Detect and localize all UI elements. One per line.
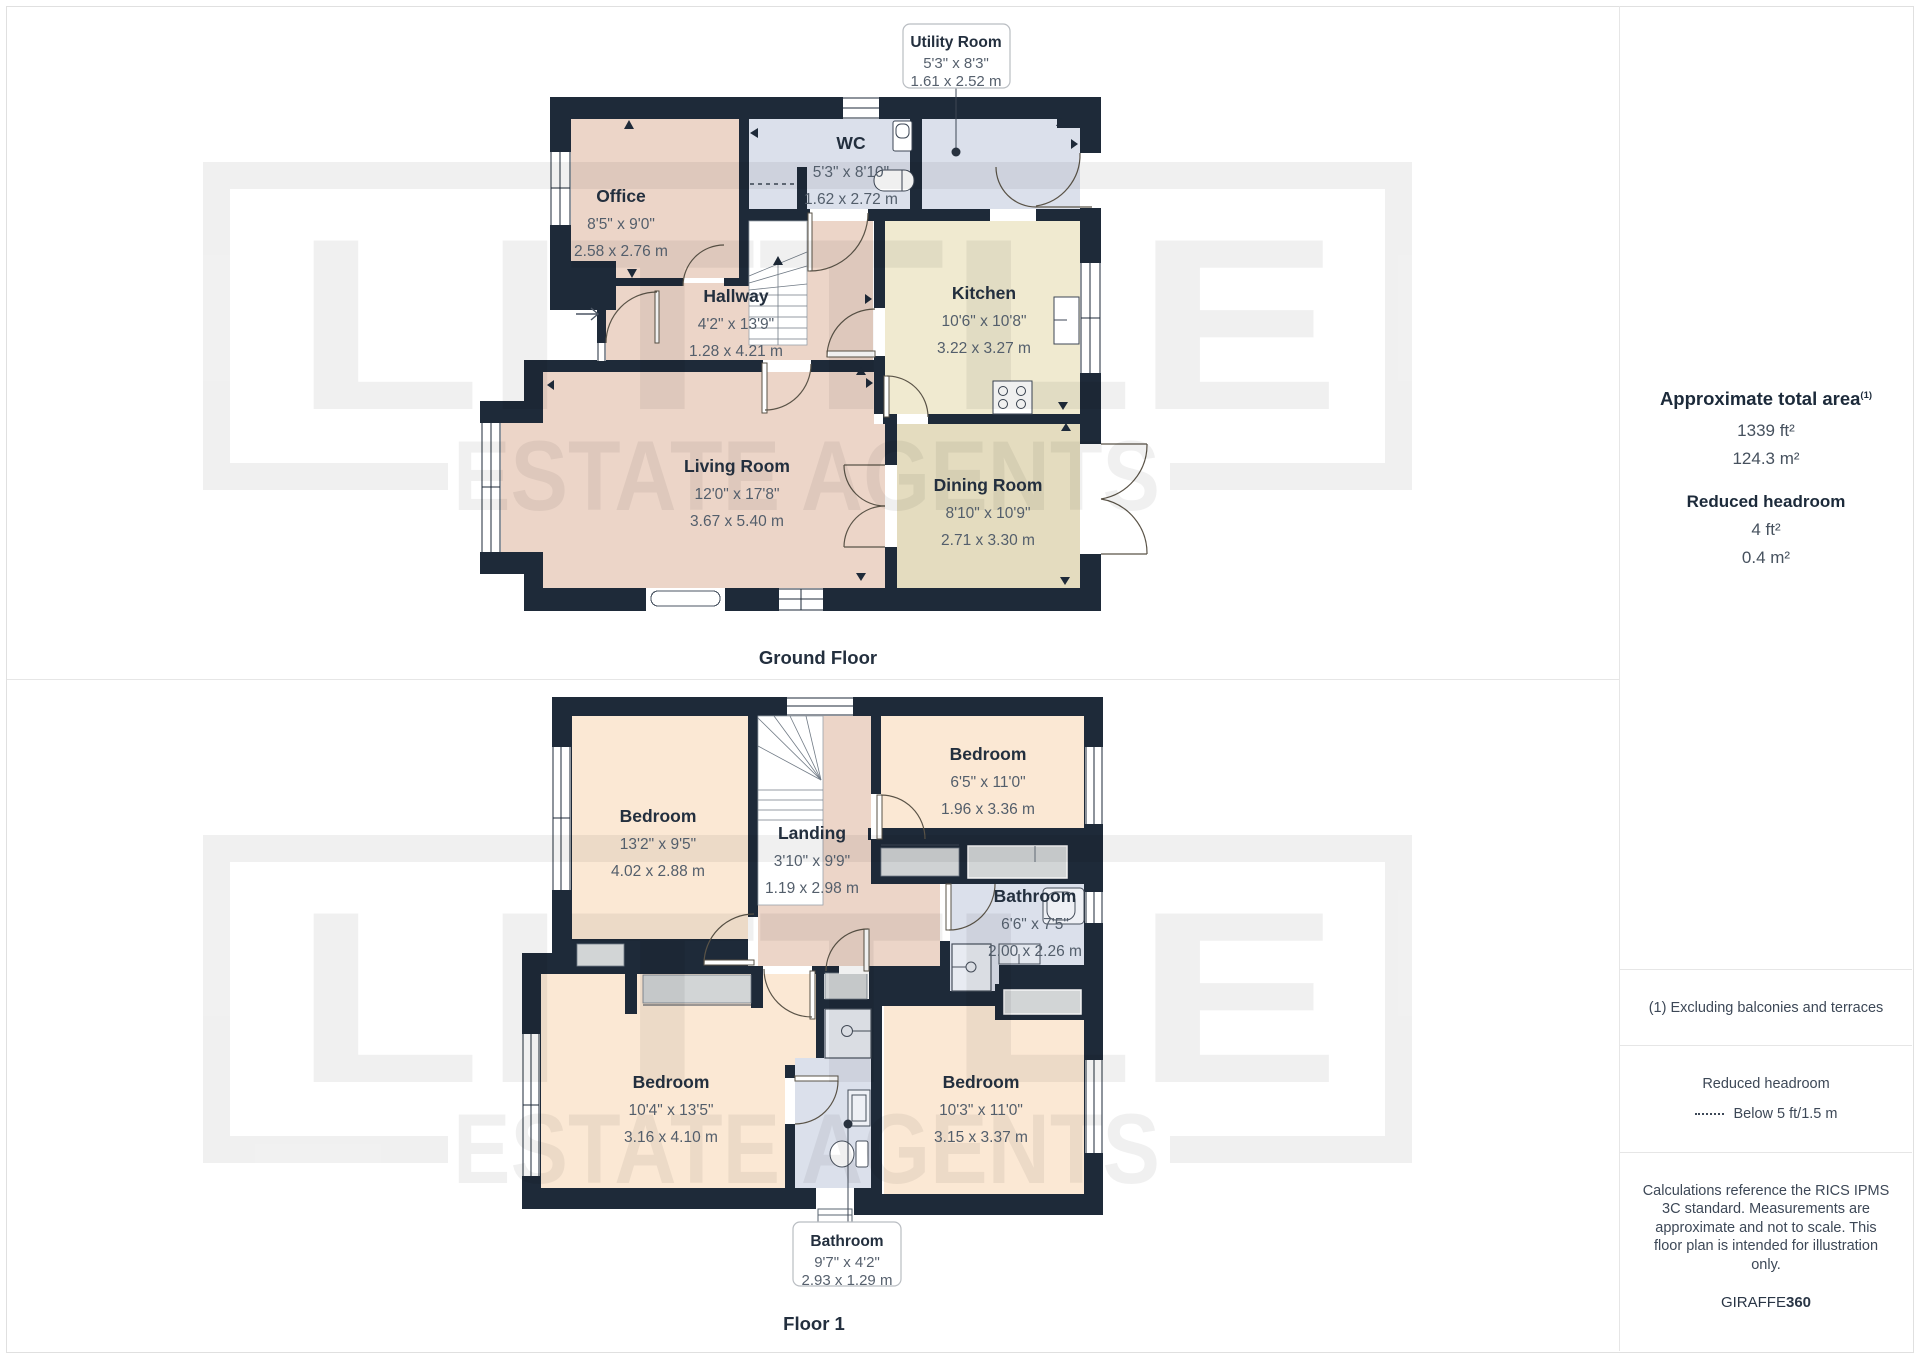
svg-text:Utility Room: Utility Room [910,34,1001,51]
svg-text:1.61 x 2.52 m: 1.61 x 2.52 m [911,73,1002,90]
svg-text:Office: Office [596,186,646,206]
svg-text:6'6" x 7'5": 6'6" x 7'5" [1001,916,1069,933]
svg-text:3.15 x 3.37 m: 3.15 x 3.37 m [934,1129,1028,1146]
svg-text:Bedroom: Bedroom [633,1072,710,1092]
svg-text:1.62 x 2.72 m: 1.62 x 2.72 m [804,191,898,208]
svg-text:6'5" x 11'0": 6'5" x 11'0" [950,774,1025,791]
svg-text:10'6" x 10'8": 10'6" x 10'8" [941,313,1026,330]
svg-text:Bedroom: Bedroom [950,744,1027,764]
svg-text:Hallway: Hallway [703,286,768,306]
svg-text:1.28 x 4.21 m: 1.28 x 4.21 m [689,343,783,360]
svg-text:3'10" x 9'9": 3'10" x 9'9" [774,853,850,870]
svg-text:3.22 x 3.27 m: 3.22 x 3.27 m [937,340,1031,357]
svg-text:8'5" x 9'0": 8'5" x 9'0" [587,216,655,233]
svg-text:Kitchen: Kitchen [952,283,1016,303]
svg-text:Bedroom: Bedroom [620,806,697,826]
svg-text:2.00 x 2.26 m: 2.00 x 2.26 m [988,943,1082,960]
svg-text:5'3" x 8'3": 5'3" x 8'3" [923,55,989,72]
svg-text:1.19 x 2.98 m: 1.19 x 2.98 m [765,880,859,897]
svg-text:WC: WC [836,133,866,153]
svg-text:4'2" x 13'9": 4'2" x 13'9" [698,316,774,333]
svg-text:Bathroom: Bathroom [994,886,1077,906]
svg-text:13'2" x 9'5": 13'2" x 9'5" [620,836,696,853]
svg-text:Dining Room: Dining Room [934,475,1043,495]
svg-text:3.67 x 5.40 m: 3.67 x 5.40 m [690,513,784,530]
svg-text:Landing: Landing [778,823,846,843]
svg-text:Bedroom: Bedroom [943,1072,1020,1092]
svg-text:10'4" x 13'5": 10'4" x 13'5" [628,1102,713,1119]
svg-text:4.02 x 2.88 m: 4.02 x 2.88 m [611,863,705,880]
svg-text:12'0" x 17'8": 12'0" x 17'8" [694,486,779,503]
svg-text:9'7" x 4'2": 9'7" x 4'2" [814,1254,880,1271]
svg-text:2.71 x 3.30 m: 2.71 x 3.30 m [941,532,1035,549]
svg-text:3.16 x 4.10 m: 3.16 x 4.10 m [624,1129,718,1146]
svg-text:2.58 x 2.76 m: 2.58 x 2.76 m [574,243,668,260]
svg-text:Ground Floor: Ground Floor [759,647,877,668]
svg-text:1.96 x 3.36 m: 1.96 x 3.36 m [941,801,1035,818]
svg-text:2.93 x 1.29 m: 2.93 x 1.29 m [802,1272,893,1289]
svg-text:10'3" x 11'0": 10'3" x 11'0" [939,1102,1023,1119]
svg-text:Floor 1: Floor 1 [783,1313,845,1334]
svg-text:Bathroom: Bathroom [810,1233,883,1250]
svg-text:Living Room: Living Room [684,456,790,476]
svg-text:5'3" x 8'10": 5'3" x 8'10" [813,164,889,181]
svg-text:8'10" x 10'9": 8'10" x 10'9" [945,505,1030,522]
